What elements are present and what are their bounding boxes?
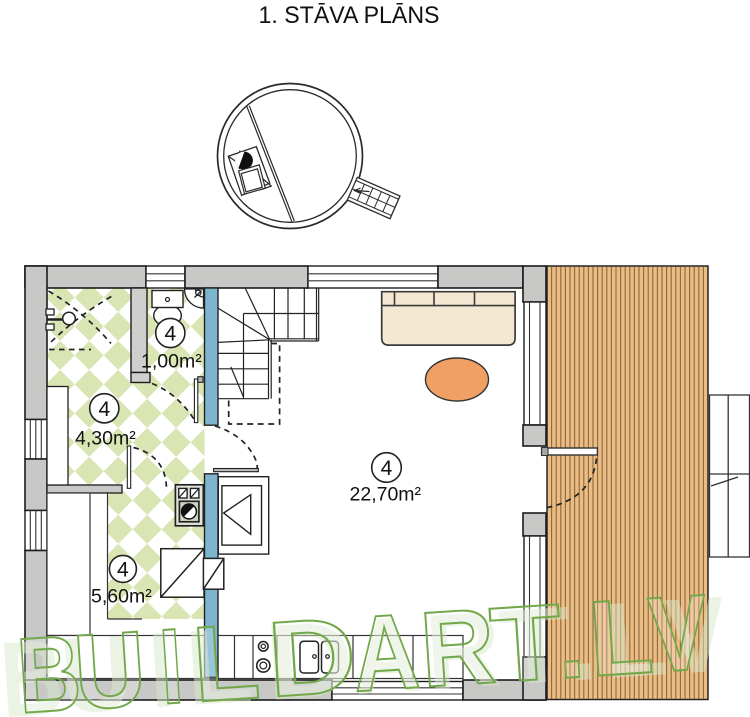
svg-text:L: L <box>586 575 657 699</box>
svg-text:4: 4 <box>98 398 110 421</box>
svg-text:U: U <box>71 608 150 717</box>
svg-text:5,60m²: 5,60m² <box>91 586 152 608</box>
svg-text:1,00m²: 1,00m² <box>141 351 202 373</box>
svg-text:4: 4 <box>117 558 129 581</box>
svg-text:T: T <box>487 581 566 705</box>
svg-text:L: L <box>189 601 263 717</box>
svg-text:V: V <box>645 572 711 695</box>
svg-text:4,30m²: 4,30m² <box>75 428 136 450</box>
svg-text:22,70m²: 22,70m² <box>350 484 422 506</box>
svg-text:D: D <box>264 594 360 717</box>
svg-text:R: R <box>417 585 499 710</box>
svg-text:4: 4 <box>381 457 393 480</box>
svg-text:1. STĀVA PLĀNS: 1. STĀVA PLĀNS <box>259 2 440 29</box>
svg-text:4: 4 <box>164 323 176 346</box>
svg-text:A: A <box>349 590 423 714</box>
